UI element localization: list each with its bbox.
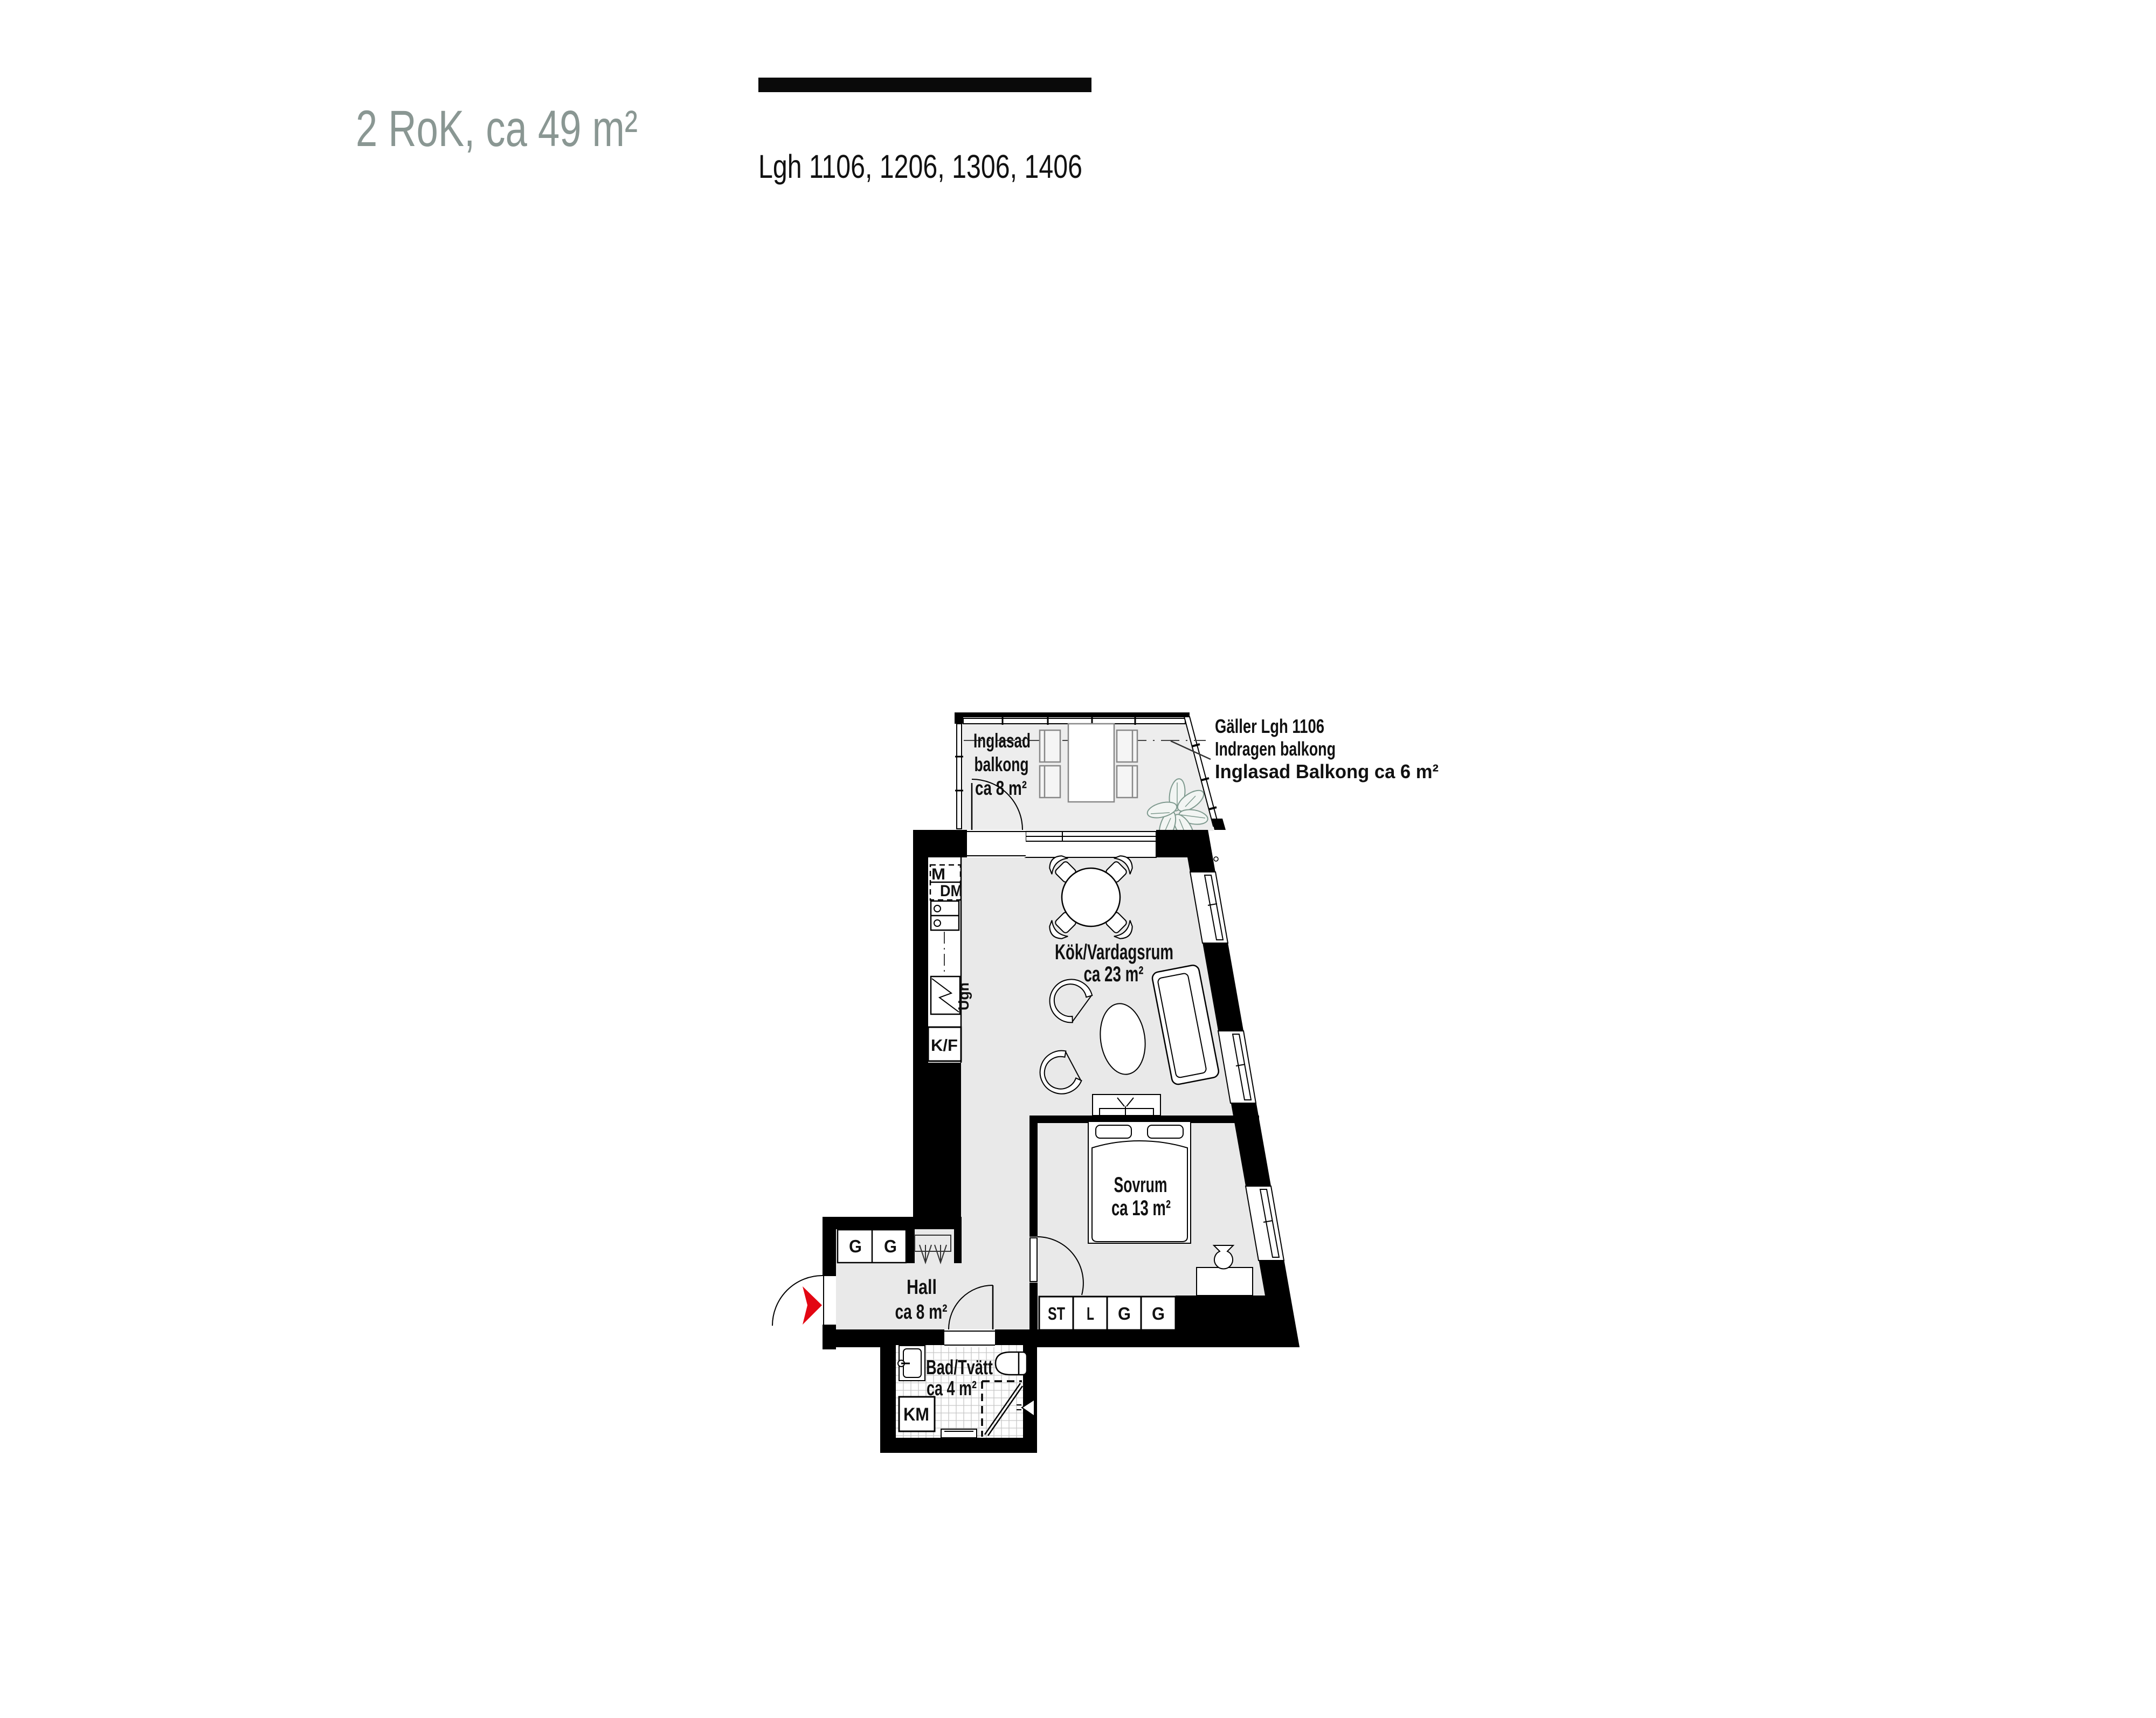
svg-text:KM: KM: [903, 1404, 929, 1425]
svg-text:L: L: [1087, 1304, 1094, 1324]
svg-text:Kök/Vardagsrum: Kök/Vardagsrum: [1055, 940, 1173, 964]
svg-text:ca 4 m²: ca 4 m²: [927, 1377, 977, 1400]
svg-text:ST: ST: [1048, 1304, 1065, 1324]
svg-text:Inglasad: Inglasad: [973, 730, 1031, 752]
svg-text:G: G: [884, 1236, 897, 1256]
svg-text:Sovrum: Sovrum: [1114, 1173, 1167, 1197]
svg-text:Gäller Lgh 1106: Gäller Lgh 1106: [1215, 715, 1324, 737]
svg-text:Ugn: Ugn: [955, 982, 972, 1010]
svg-text:ca 23 m²: ca 23 m²: [1084, 962, 1144, 986]
svg-text:K/F: K/F: [931, 1036, 958, 1055]
svg-text:Hall: Hall: [907, 1276, 937, 1299]
svg-text:M: M: [931, 865, 945, 883]
svg-text:ca 8 m²: ca 8 m²: [895, 1301, 948, 1324]
svg-text:DM: DM: [940, 882, 963, 900]
svg-text:Indragen balkong: Indragen balkong: [1215, 738, 1336, 760]
svg-text:ca 13 m²: ca 13 m²: [1111, 1196, 1171, 1220]
svg-text:G: G: [1118, 1304, 1131, 1324]
svg-text:2 RoK, ca 49 m²: 2 RoK, ca 49 m²: [356, 100, 638, 157]
svg-text:balkong: balkong: [975, 753, 1029, 775]
svg-text:Inglasad Balkong ca 6 m²: Inglasad Balkong ca 6 m²: [1215, 760, 1439, 782]
svg-text:Bad/Tvätt: Bad/Tvätt: [926, 1356, 993, 1379]
svg-text:G: G: [1152, 1304, 1165, 1324]
svg-text:Lgh 1106, 1206, 1306, 1406: Lgh 1106, 1206, 1306, 1406: [758, 148, 1082, 185]
svg-text:G: G: [849, 1236, 862, 1256]
